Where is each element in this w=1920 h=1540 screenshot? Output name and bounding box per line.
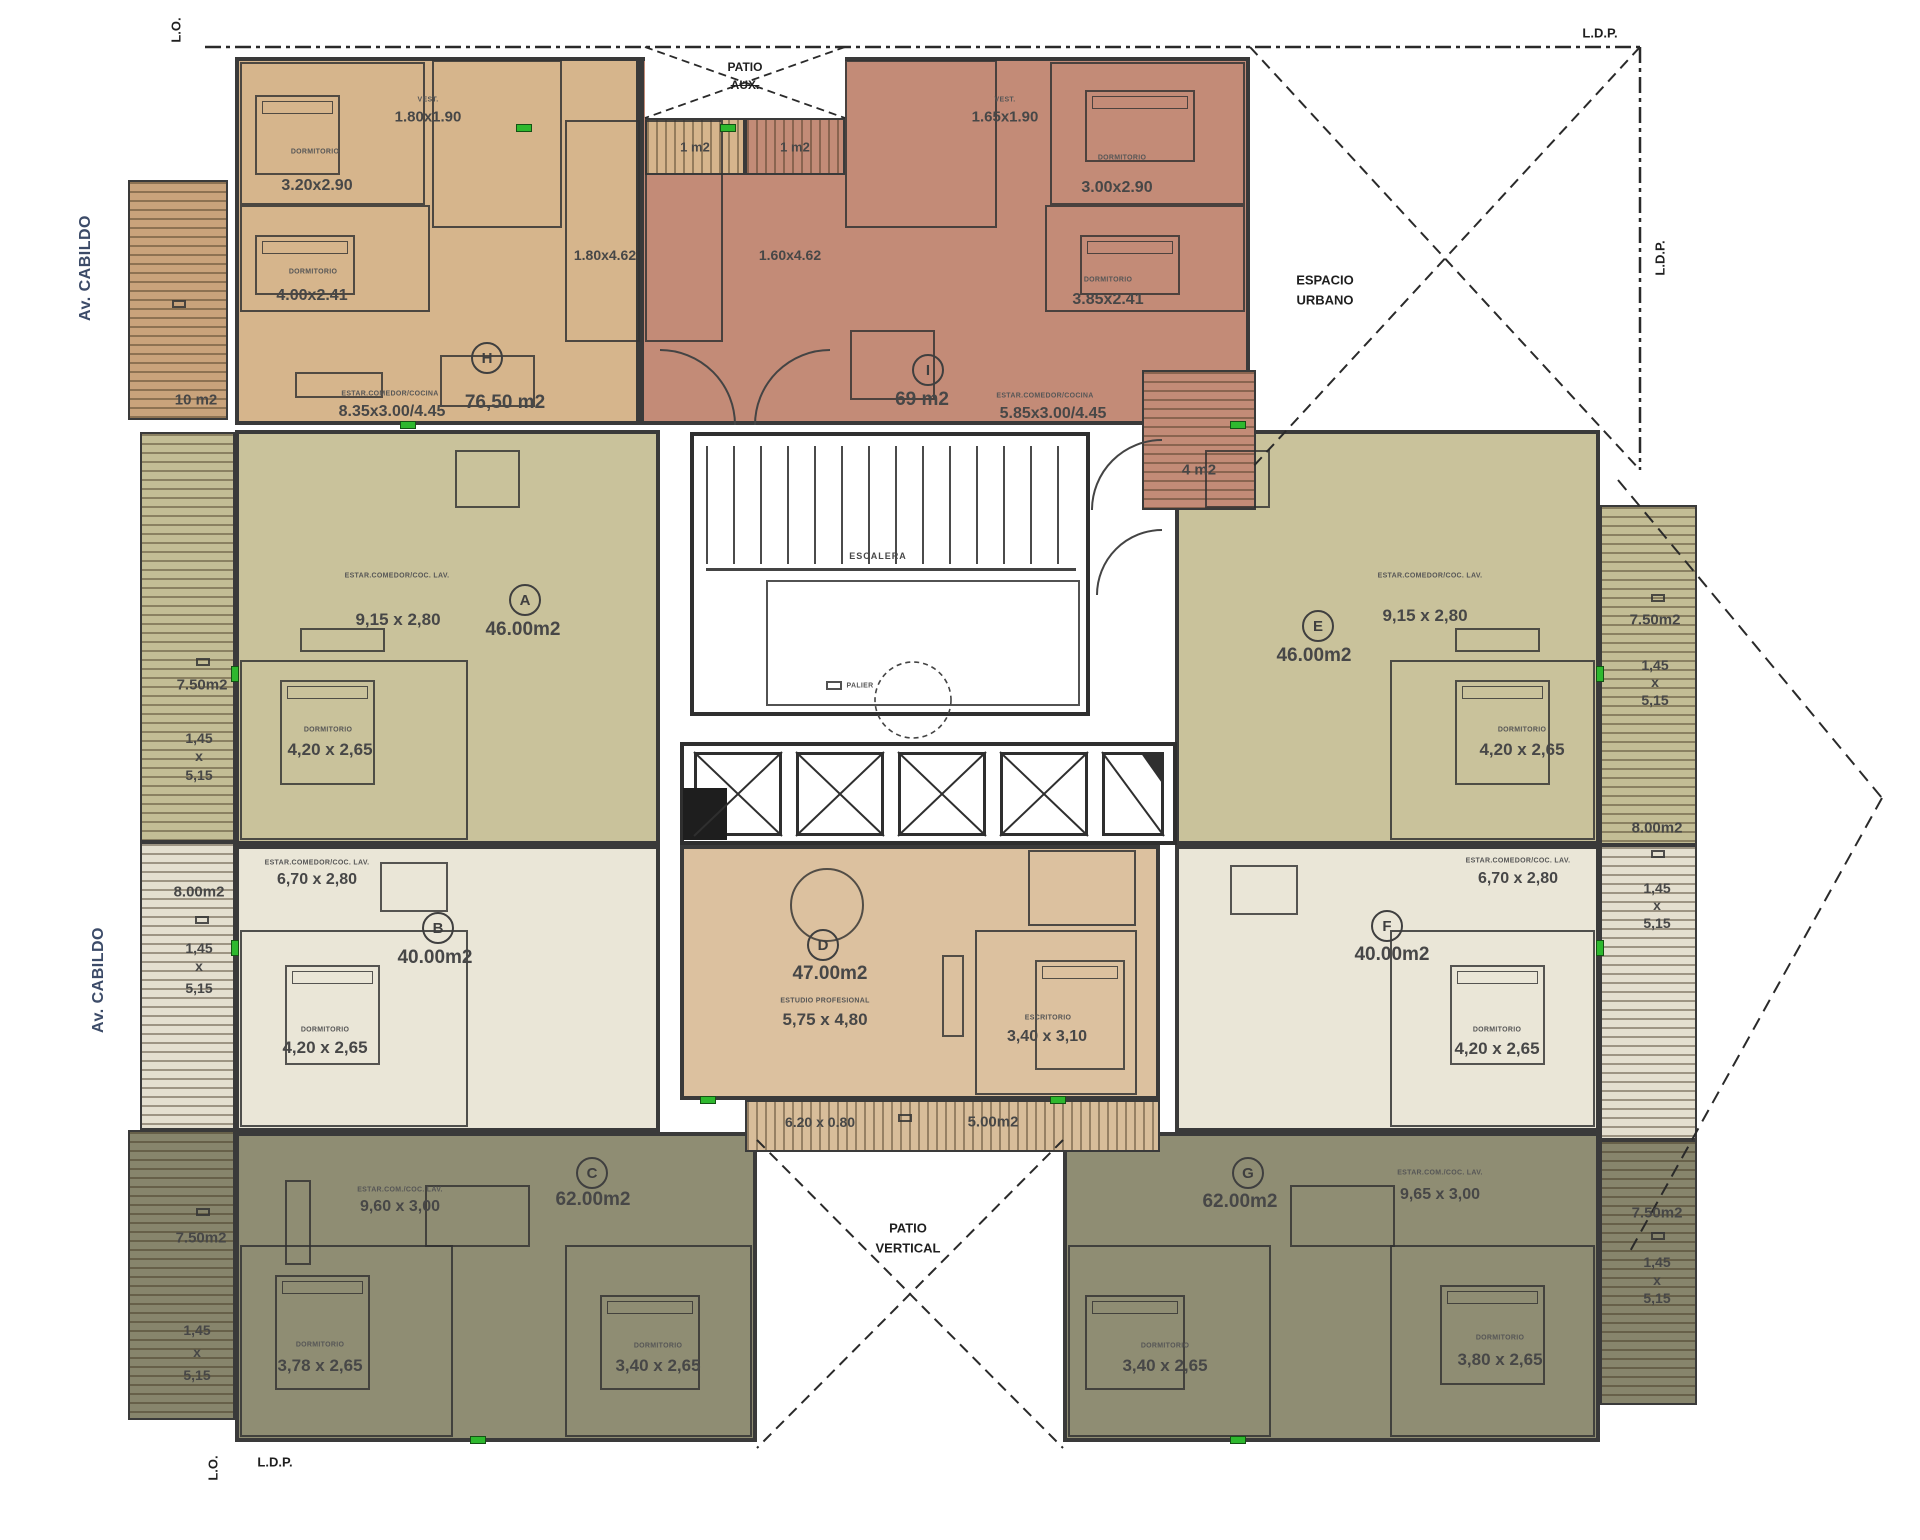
b-dorm-dims: 4,20 x 2,65 [282, 1038, 367, 1058]
stair-landing [766, 580, 1080, 706]
c-dorm1-dims: 3,78 x 2,65 [277, 1356, 362, 1376]
b-area: 40.00m2 [397, 947, 472, 969]
balcony-a-area: 7.50m2 [177, 677, 228, 694]
h-terrace-area: 10 m2 [175, 392, 218, 409]
balcony-c-area: 7.50m2 [176, 1230, 227, 1247]
sofa-a [300, 628, 385, 652]
espacio-urbano-x [1250, 47, 1640, 470]
e-dorm-dims: 4,20 x 2,65 [1479, 740, 1564, 760]
table-b [380, 862, 448, 912]
ldp-right-label: L.D.P. [1653, 240, 1668, 275]
balcon-icon-b [195, 916, 209, 924]
a-living-dims: 9,15 x 2,80 [355, 610, 440, 630]
c-living-label: ESTAR.COM./COC. LAV. [357, 1187, 443, 1194]
balcony-g-x: x [1653, 1272, 1661, 1288]
balcony-c-left [128, 1130, 235, 1420]
elevator-2 [796, 752, 884, 836]
h-patio-balcony-area: 1 m2 [680, 140, 710, 155]
balcon-icon-c [196, 1208, 210, 1216]
balcon-icon-f [1651, 850, 1665, 858]
bed-h2 [255, 235, 355, 295]
i-living-label: ESTAR.COMEDOR/COCINA [996, 393, 1093, 400]
balcony-a-w: 1,45 [185, 730, 212, 746]
c-area: 62.00m2 [555, 1189, 630, 1211]
unit-i-letter: I [912, 354, 944, 386]
floor-plan: L.O. L.D.P. L.D.P. L.O. L.D.P. Av. CABIL… [0, 0, 1920, 1540]
patio-vertical-x [757, 1140, 1063, 1448]
balcony-c-x: x [193, 1344, 201, 1360]
d-office-dims: 3,40 x 3,10 [1007, 1028, 1087, 1046]
h-living-dims: 8.35x3.00/4.45 [339, 403, 446, 421]
balcon-icon-g [1651, 1232, 1665, 1240]
h-kitchen [565, 120, 640, 342]
d-office-label: ESCRITORIO [1025, 1015, 1071, 1022]
c-living-dims: 9,60 x 3,00 [360, 1198, 440, 1216]
unit-f-letter: F [1371, 910, 1403, 942]
e-dorm-label: DORMITORIO [1498, 727, 1546, 734]
unit-c-letter: C [576, 1157, 608, 1189]
patio-vertical-label-2: VERTICAL [876, 1241, 941, 1256]
g-dorm2-dims: 3,80 x 2,65 [1457, 1350, 1542, 1370]
h-bathrooms [432, 60, 562, 228]
balcony-e-area: 7.50m2 [1630, 612, 1681, 629]
balcony-e-l: 5,15 [1641, 692, 1668, 708]
i-dorm2-dims: 3.85x2.41 [1072, 291, 1143, 309]
marker-4 [1230, 421, 1246, 429]
bed-h1 [255, 95, 340, 175]
e-living-label: ESTAR.COMEDOR/COC. LAV. [1378, 573, 1483, 580]
a-dorm-dims: 4,20 x 2,65 [287, 740, 372, 760]
sofa-e [1455, 628, 1540, 652]
stair-treads [706, 446, 1074, 564]
i-stair-balcony-area: 4 m2 [1182, 462, 1216, 479]
c-dorm2-label: DORMITORIO [634, 1343, 682, 1350]
i-patio-balcony-area: 1 m2 [780, 140, 810, 155]
balcony-f-area: 8.00m2 [1632, 820, 1683, 837]
balcon-icon-e [1651, 594, 1665, 602]
a-living-label: ESTAR.COMEDOR/COC. LAV. [345, 573, 450, 580]
g-dorm2-label: DORMITORIO [1476, 1335, 1524, 1342]
street-label-top: Av. CABILDO [77, 215, 95, 321]
g-dorm1-label: DORMITORIO [1141, 1343, 1189, 1350]
d-studio-label: ESTUDIO PROFESIONAL [780, 998, 869, 1005]
d-balcony-area: 5.00m2 [968, 1114, 1019, 1131]
marker-8 [1596, 940, 1604, 956]
bed-i1 [1085, 90, 1195, 162]
h-vest-dims: 1.80x1.90 [395, 109, 462, 126]
i-dorm1-label: DORMITORIO [1098, 155, 1146, 162]
balcony-c-l: 5,15 [183, 1367, 210, 1383]
balcony-g-area: 7.50m2 [1632, 1205, 1683, 1222]
balcony-b-l: 5,15 [185, 980, 212, 996]
elevator-4 [1000, 752, 1088, 836]
b-living-dims: 6,70 x 2,80 [277, 871, 357, 889]
service-shaft [1102, 752, 1164, 836]
h-living-label: ESTAR.COMEDOR/COCINA [341, 391, 438, 398]
e-living-dims: 9,15 x 2,80 [1382, 606, 1467, 626]
balcony-g-w: 1,45 [1643, 1254, 1670, 1270]
i-dorm2-label: DORMITORIO [1084, 277, 1132, 284]
f-area: 40.00m2 [1354, 944, 1429, 966]
f-living-label: ESTAR.COMEDOR/COC. LAV. [1466, 858, 1571, 865]
table-g [1290, 1185, 1395, 1247]
d-studio-dims: 5,75 x 4,80 [782, 1010, 867, 1030]
c-dorm2-dims: 3,40 x 2,65 [615, 1356, 700, 1376]
i-area: 69 m2 [895, 389, 949, 411]
i-living-dims: 5.85x3.00/4.45 [1000, 405, 1107, 423]
balcony-a-x: x [195, 748, 203, 764]
balcony-f-l: 5,15 [1643, 915, 1670, 931]
street-label-bottom: Av. CABILDO [90, 927, 108, 1033]
palier-icon [826, 681, 842, 690]
elevator-3 [898, 752, 986, 836]
i-bathrooms [845, 60, 997, 228]
unit-g-letter: G [1232, 1157, 1264, 1189]
escalera-label: ESCALERA [849, 551, 907, 561]
palier-label: PALIER [847, 683, 874, 690]
b-dorm-label: DORMITORIO [301, 1027, 349, 1034]
balcon-icon-d [898, 1114, 912, 1122]
espacio-urbano-label-2: URBANO [1296, 293, 1353, 308]
e-area: 46.00m2 [1276, 645, 1351, 667]
sofa-d [942, 955, 964, 1037]
h-dorm1-label: DORMITORIO [291, 149, 339, 156]
espacio-urbano-label-1: ESPACIO [1296, 273, 1354, 288]
patio-vertical-label-1: PATIO [889, 1221, 927, 1236]
d-balcony-dims: 6.20 x 0.80 [785, 1114, 855, 1130]
balcony-e-x: x [1651, 674, 1659, 690]
balcony-e-w: 1,45 [1641, 657, 1668, 673]
marker-1 [516, 124, 532, 132]
balcony-g-right [1600, 1140, 1697, 1405]
f-dorm-dims: 4,20 x 2,65 [1454, 1039, 1539, 1059]
patio-aux-label-1: PATIO [728, 60, 763, 74]
a-area: 46.00m2 [485, 619, 560, 641]
h-vest-label: VEST. [418, 97, 439, 104]
d-bathroom [1028, 850, 1136, 926]
b-living-label: ESTAR.COMEDOR/COC. LAV. [265, 860, 370, 867]
marker-7 [231, 940, 239, 956]
balcony-g-l: 5,15 [1643, 1290, 1670, 1306]
g-living-label: ESTAR.COM./COC. LAV. [1397, 1170, 1483, 1177]
ldp-top-label: L.D.P. [1582, 26, 1617, 41]
table-e [1205, 450, 1270, 508]
table-f [1230, 865, 1298, 915]
balcony-c-w: 1,45 [183, 1322, 210, 1338]
i-vest-dims: 1.65x1.90 [972, 109, 1039, 126]
balcon-icon-a [196, 658, 210, 666]
ldp-bottom-label: L.D.P. [257, 1455, 292, 1470]
unit-a-letter: A [509, 584, 541, 616]
table-c [425, 1185, 530, 1247]
h-dorm1-dims: 3.20x2.90 [281, 177, 352, 195]
unit-h-letter: H [471, 342, 503, 374]
balcony-b-x: x [195, 958, 203, 974]
marker-6 [1596, 666, 1604, 682]
i-kitchen-dims: 1.60x4.62 [759, 247, 821, 263]
h-area: 76,50 m2 [465, 392, 545, 414]
balcony-e-right [1600, 505, 1697, 845]
bed-i2 [1080, 235, 1180, 295]
marker-2 [720, 124, 736, 132]
unit-e-letter: E [1302, 610, 1334, 642]
f-living-dims: 6,70 x 2,80 [1478, 870, 1558, 888]
c-dorm1-label: DORMITORIO [296, 1342, 344, 1349]
h-dorm2-dims: 4.00x2.41 [276, 287, 347, 305]
sofa-c [285, 1180, 311, 1265]
lo-top-label: L.O. [169, 17, 184, 42]
marker-12 [1230, 1436, 1246, 1444]
lo-bottom-label: L.O. [206, 1455, 221, 1480]
stair-divider [706, 568, 1076, 571]
balcony-f-w: 1,45 [1643, 880, 1670, 896]
balcony-b-w: 1,45 [185, 940, 212, 956]
marker-5 [231, 666, 239, 682]
g-area: 62.00m2 [1202, 1191, 1277, 1213]
unit-d-letter: D [807, 929, 839, 961]
balcony-b-area: 8.00m2 [174, 884, 225, 901]
balcony-a-l: 5,15 [185, 767, 212, 783]
h-kitchen-dims: 1.80x4.62 [574, 247, 636, 263]
f-dorm-label: DORMITORIO [1473, 1027, 1521, 1034]
marker-9 [700, 1096, 716, 1104]
balcony-f-x: x [1653, 897, 1661, 913]
shaft-block [683, 788, 727, 840]
unit-b-letter: B [422, 912, 454, 944]
table-a [455, 450, 520, 508]
marker-10 [1050, 1096, 1066, 1104]
marker-11 [470, 1436, 486, 1444]
h-dorm2-label: DORMITORIO [289, 269, 337, 276]
g-dorm1-dims: 3,40 x 2,65 [1122, 1356, 1207, 1376]
g-living-dims: 9,65 x 3,00 [1400, 1186, 1480, 1204]
terrace-h-icon [172, 300, 186, 308]
a-dorm-label: DORMITORIO [304, 727, 352, 734]
marker-3 [400, 421, 416, 429]
i-dorm1-dims: 3.00x2.90 [1081, 179, 1152, 197]
d-area: 47.00m2 [792, 963, 867, 985]
patio-aux-label-2: AUX. [731, 78, 760, 92]
i-vest-label: VEST. [995, 97, 1016, 104]
